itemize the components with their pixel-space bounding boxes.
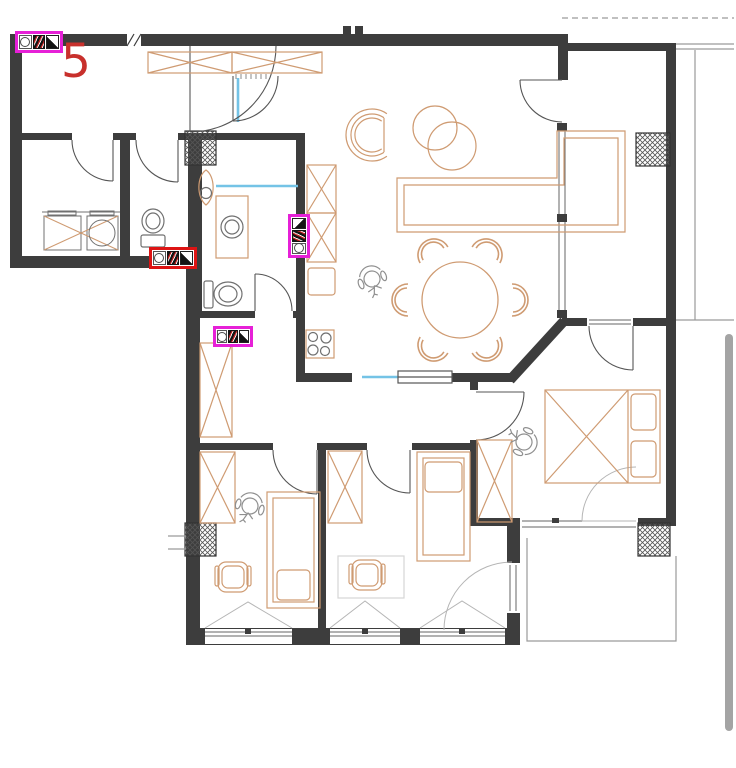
dining-set	[392, 233, 528, 367]
wall-break-symbol	[127, 34, 141, 46]
window-swing-1	[205, 602, 292, 628]
floor-plan-drawing	[0, 0, 736, 768]
armchair	[346, 109, 387, 161]
stripes-symbol-cell	[167, 251, 180, 265]
wc-door	[136, 140, 178, 182]
single-bed	[267, 492, 320, 608]
corner-sofa	[397, 131, 625, 232]
column-bottom-left	[185, 523, 216, 556]
scrollbar-thumb[interactable]	[725, 334, 733, 731]
double-bed	[545, 390, 660, 483]
window-swing-2	[330, 601, 400, 628]
bedroom-furniture	[477, 390, 660, 522]
pillow	[631, 441, 656, 477]
kitchen-units	[306, 165, 336, 358]
stripes-symbol-cell	[292, 230, 306, 241]
column-balcony-top	[636, 133, 670, 166]
task-chair-kids-1	[231, 489, 267, 527]
living-balcony-door	[520, 80, 562, 122]
wc-fixtures	[141, 209, 165, 247]
task-chairs	[231, 262, 542, 528]
equipment-marker-hall[interactable]	[213, 326, 253, 347]
equipment-marker-wc[interactable]	[149, 247, 197, 269]
windows	[205, 123, 636, 636]
triangle-symbol-cell	[46, 35, 59, 49]
unit-number-label: 5	[61, 38, 91, 85]
pillow	[277, 570, 310, 600]
walls	[10, 26, 676, 645]
laundry-door	[72, 140, 113, 181]
fridge	[308, 268, 335, 295]
circle-symbol-cell	[153, 251, 166, 265]
toilet-tank	[141, 235, 165, 247]
pillow	[425, 462, 462, 492]
corridor-wardrobes	[200, 343, 232, 437]
kids-room-2-balcony-swing	[444, 562, 512, 630]
triangle-symbol-cell	[239, 330, 249, 343]
hall-wardrobe	[148, 52, 322, 79]
laundry-fixtures	[42, 211, 120, 250]
stripes-symbol-cell	[33, 35, 46, 49]
column-bath	[185, 131, 216, 165]
triangle-symbol-cell	[180, 251, 193, 265]
equipment-marker-entry[interactable]	[15, 31, 63, 53]
kids-room-2-door	[367, 450, 410, 493]
kids-room-1-door	[273, 450, 317, 494]
task-chair-living	[354, 262, 392, 301]
triangle-symbol-cell	[292, 218, 306, 229]
plant	[428, 122, 476, 170]
circle-symbol-cell	[217, 330, 227, 343]
window-swing-3	[420, 601, 505, 628]
circle-symbol-cell	[19, 35, 32, 49]
plant	[413, 106, 457, 150]
task-chair-bedroom	[502, 421, 543, 460]
stripes-symbol-cell	[228, 330, 238, 343]
bathroom-door	[255, 274, 292, 311]
equipment-marker-kitchen[interactable]	[288, 214, 310, 258]
kids-room-1-furniture	[200, 452, 320, 608]
vanity-sink	[221, 216, 243, 238]
desk-chair	[215, 562, 251, 592]
doors	[72, 46, 633, 494]
bedroom-balcony-door	[589, 326, 633, 370]
kids-room-2-furniture	[328, 451, 470, 598]
floor-plan-viewport: 5	[0, 0, 736, 768]
dining-table	[422, 262, 498, 338]
desk	[338, 556, 404, 598]
entry-living-door	[233, 76, 278, 121]
pillow	[631, 394, 656, 430]
column-balcony-bottom	[638, 523, 670, 556]
desk-chair	[349, 560, 385, 590]
circle-symbol-cell	[292, 243, 306, 254]
toilet-tank-2	[204, 281, 213, 308]
bathroom-fixtures	[199, 170, 248, 308]
